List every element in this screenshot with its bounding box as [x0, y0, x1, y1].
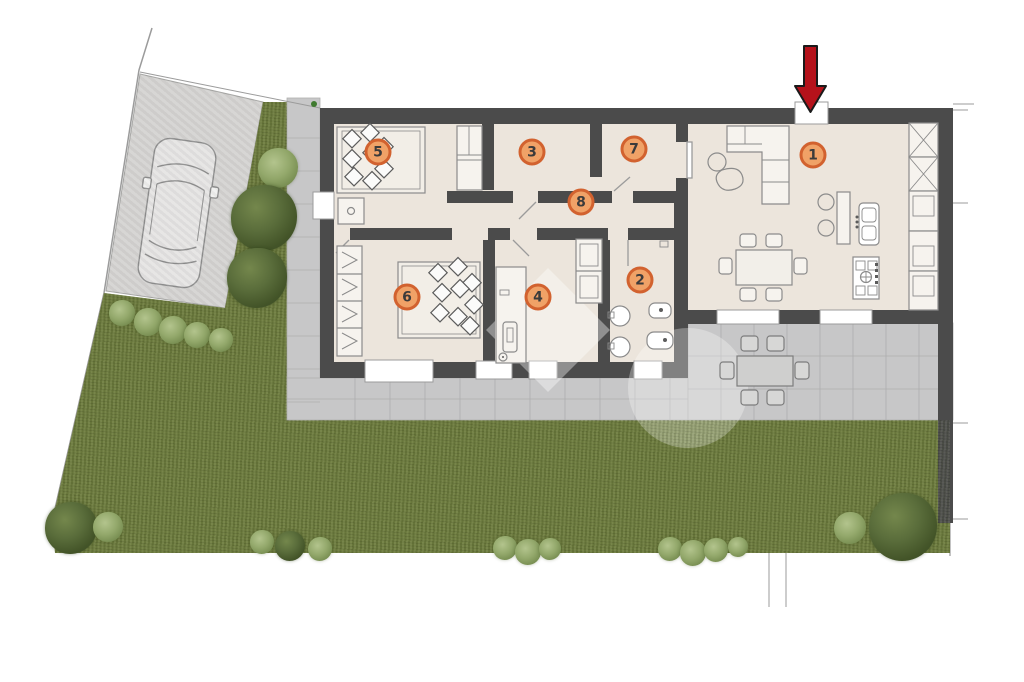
survey-marker	[311, 101, 317, 107]
washbasin	[610, 306, 630, 326]
toilet	[647, 332, 673, 349]
wardrobe-room5	[457, 126, 482, 190]
room-badge: 4	[525, 284, 552, 311]
room-badge: 8	[568, 189, 595, 216]
room-badge: 1	[800, 142, 827, 169]
nightstand	[338, 198, 364, 224]
floor-plan-drawing	[0, 0, 1024, 682]
room-badge: 3	[519, 139, 546, 166]
room-badge: 6	[394, 284, 421, 311]
floor-plan-image: 12345678	[0, 0, 1024, 682]
stove	[853, 257, 879, 299]
cabinet-room4	[496, 267, 526, 363]
room-badge: 5	[365, 139, 392, 166]
wardrobe-room4	[576, 239, 602, 303]
room-badge: 7	[621, 136, 648, 163]
washbasin	[610, 337, 630, 357]
kitchen-cabinets	[909, 123, 938, 310]
wardrobe-room6	[337, 246, 362, 356]
room-badge: 2	[627, 267, 654, 294]
